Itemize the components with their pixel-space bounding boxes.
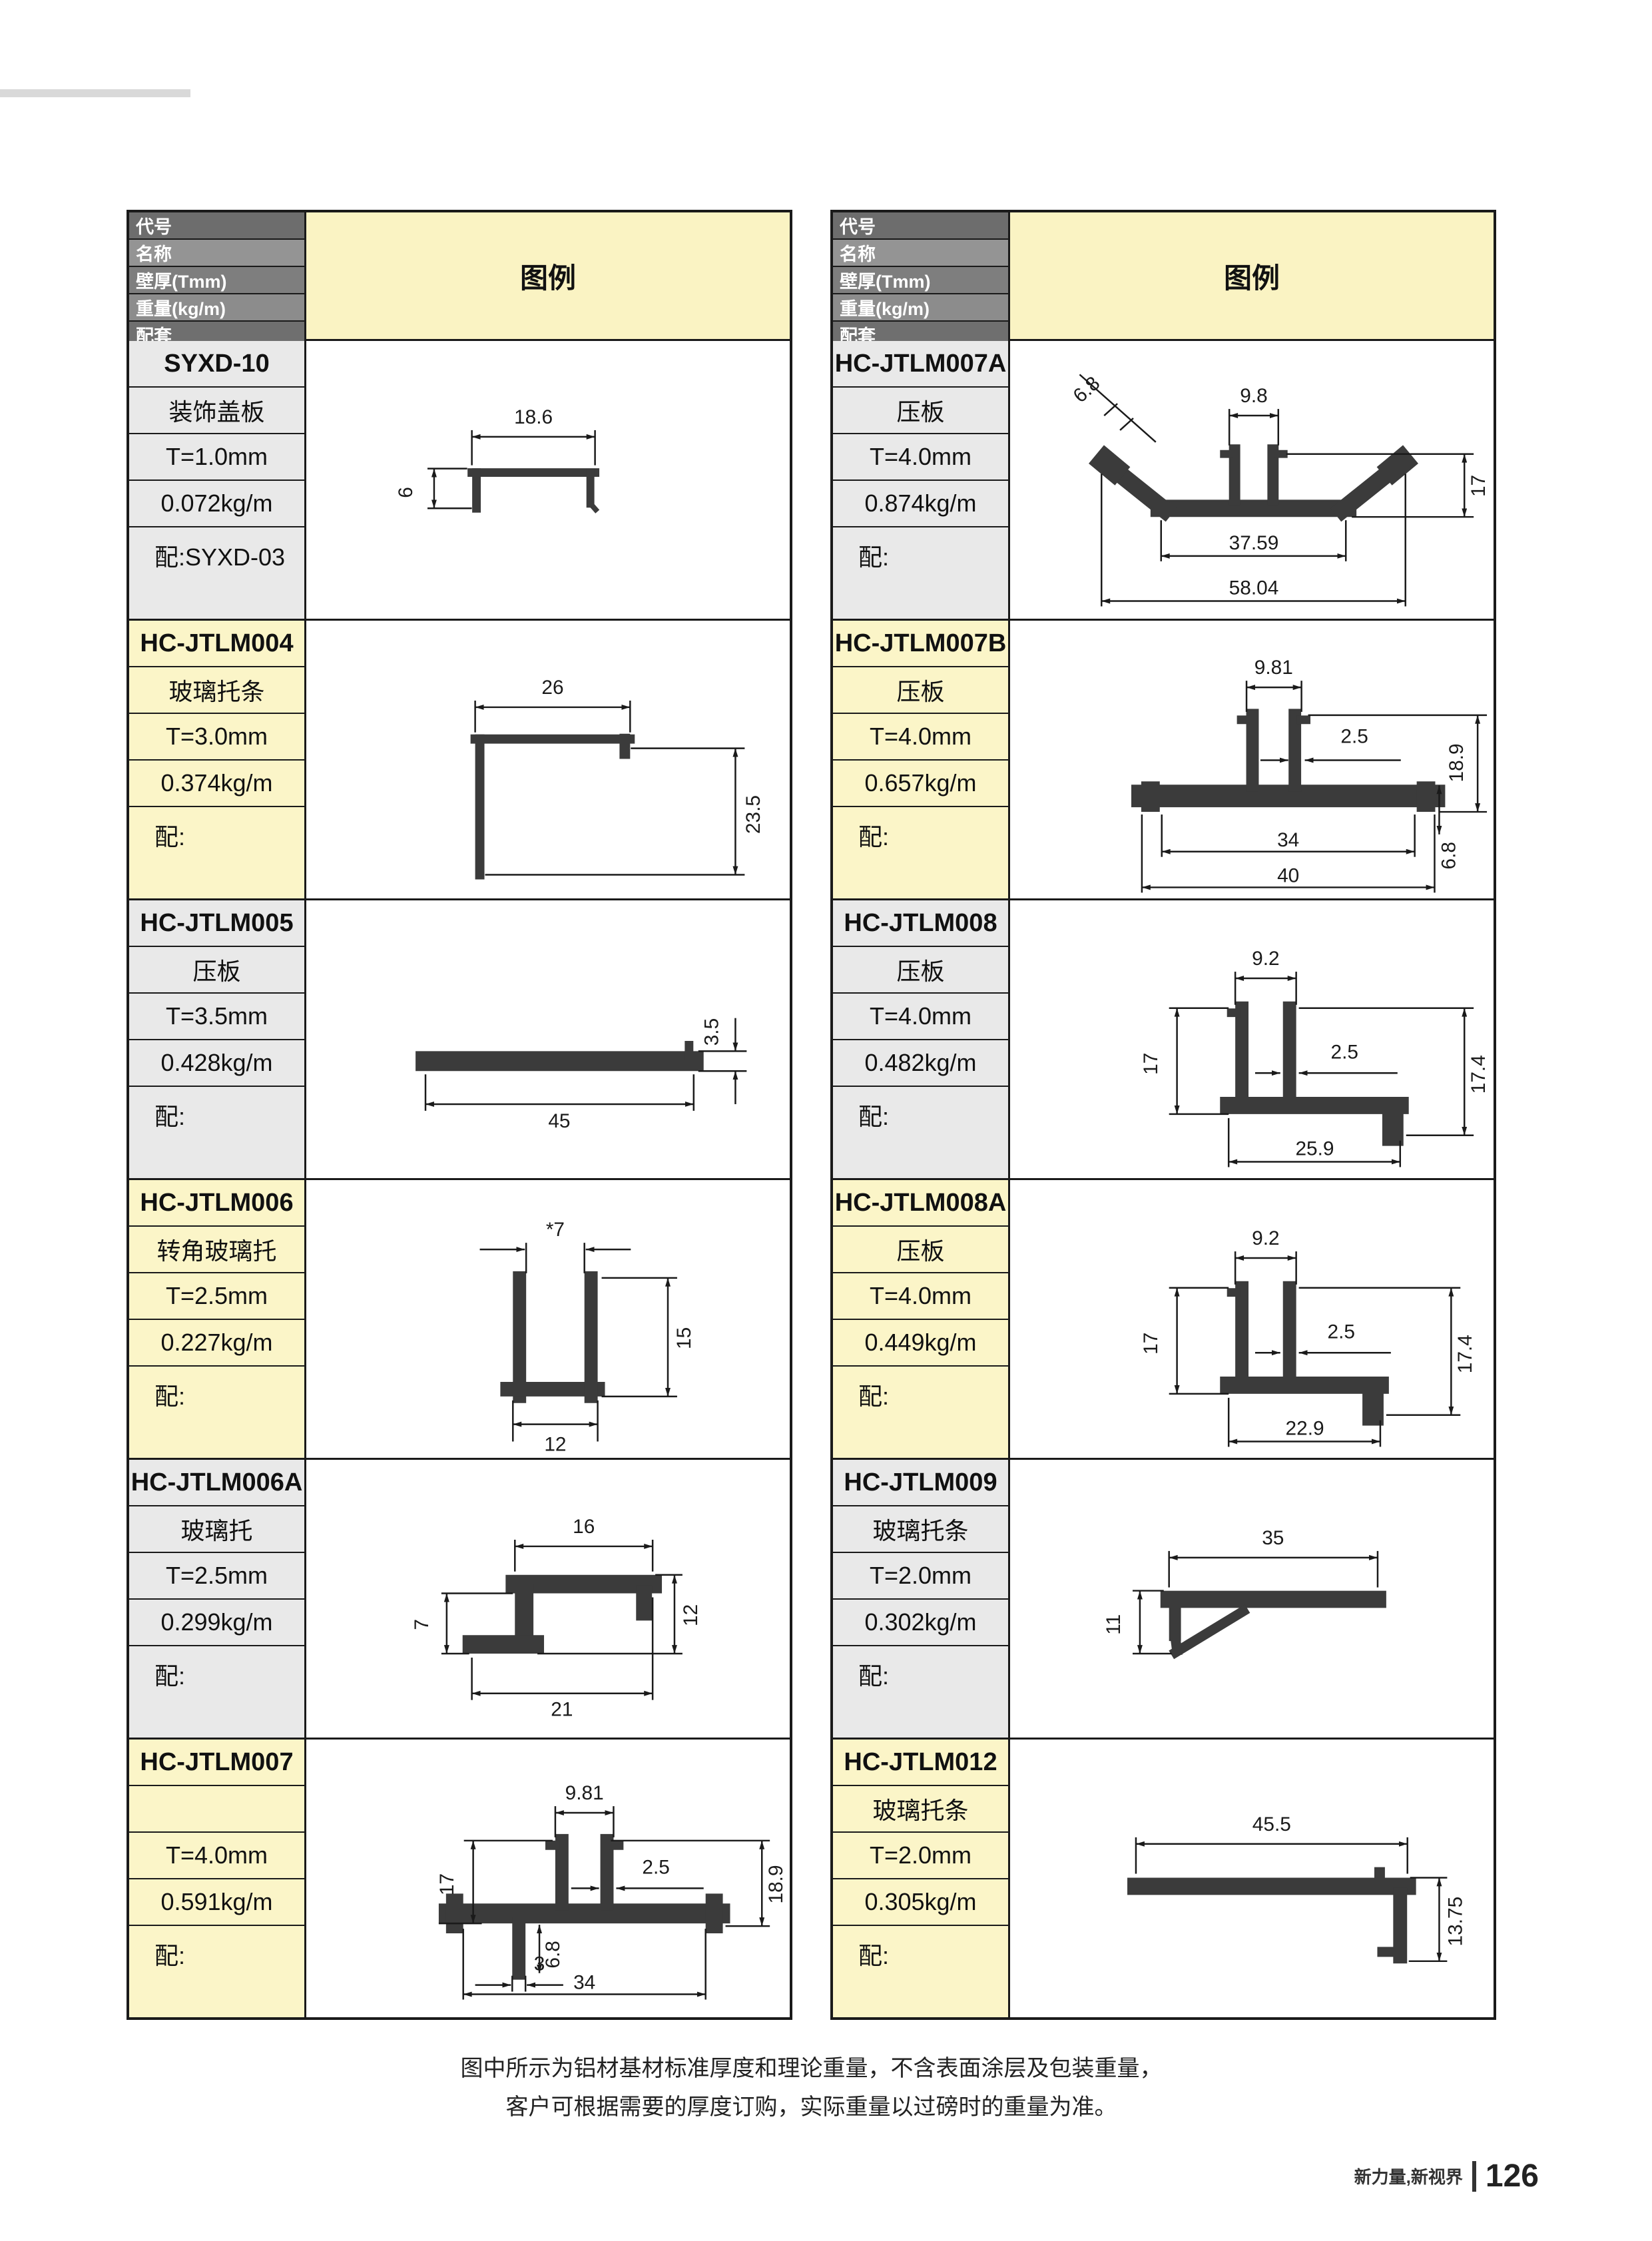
dim-label-top: 9.2 — [1252, 1227, 1279, 1249]
product-code: HC-JTLM008 — [833, 900, 1008, 947]
product-block-jtlm004: HC-JTLM004 玻璃托条 T=3.0mm 0.374kg/m 配: — [129, 619, 790, 898]
product-block-jtlm008a: HC-JTLM008A 压板 T=4.0mm 0.449kg/m 配: — [833, 1178, 1494, 1458]
profile-shape — [1136, 1873, 1408, 1957]
dimension-lines — [475, 701, 745, 875]
footer-divider — [1472, 2161, 1476, 2192]
product-labels: HC-JTLM004 玻璃托条 T=3.0mm 0.374kg/m 配: — [129, 621, 306, 898]
dim-label-width: 45 — [548, 1110, 570, 1132]
dim-label-top: 35 — [1262, 1527, 1284, 1549]
profile-drawing: 9.81 2.5 18.9 34 40 6.8 — [1010, 621, 1494, 898]
product-name: 玻璃托 — [129, 1506, 304, 1553]
product-weight: 0.428kg/m — [129, 1040, 304, 1087]
product-labels: HC-JTLM008A 压板 T=4.0mm 0.449kg/m 配: — [833, 1180, 1010, 1458]
profile-drawing: 26 23.5 — [306, 621, 790, 898]
dim-label-right: 18.9 — [765, 1865, 787, 1903]
footer-note: 图中所示为铝材基材标准厚度和理论重量，不含表面涂层及包装重量， 客户可根据需要的… — [127, 2050, 1496, 2127]
product-labels: HC-JTLM005 压板 T=3.5mm 0.428kg/m 配: — [129, 900, 306, 1178]
product-block-jtlm007: HC-JTLM007 T=4.0mm 0.591kg/m 配: — [129, 1738, 790, 2017]
profile-shape — [472, 473, 596, 510]
dim-label-gap: 2.5 — [1340, 726, 1368, 748]
dim-label-inner: 34 — [1277, 829, 1299, 851]
product-code: HC-JTLM004 — [129, 621, 304, 667]
dim-label-left: 11 — [1103, 1614, 1125, 1635]
page-number: 126 — [1486, 2158, 1539, 2194]
product-labels: SYXD-10 装饰盖板 T=1.0mm 0.072kg/m 配:SYXD-03 — [129, 341, 306, 619]
product-match: 配: — [129, 1646, 304, 1738]
dim-label-top: 9.81 — [565, 1782, 604, 1804]
product-block-jtlm006: HC-JTLM006 转角玻璃托 T=2.5mm 0.227kg/m 配: — [129, 1178, 790, 1458]
product-code: HC-JTLM008A — [833, 1180, 1008, 1227]
profile-table-left: 代号 名称 壁厚(Tmm) 重量(kg/m) 配套 图例 SYXD-10 装饰盖… — [127, 210, 792, 2020]
profile-drawing: 35 11 — [1010, 1460, 1494, 1738]
product-labels: HC-JTLM006A 玻璃托 T=2.5mm 0.299kg/m 配: — [129, 1460, 306, 1738]
product-thickness: T=4.0mm — [833, 434, 1008, 481]
profile-drawing-syxd10: 18.6 6 — [306, 341, 790, 619]
dim-label-right: 17 — [1468, 475, 1490, 497]
profile-shape — [475, 739, 631, 875]
product-thickness: T=4.0mm — [833, 994, 1008, 1040]
footer-note-line1: 图中所示为铝材基材标准厚度和理论重量，不含表面涂层及包装重量， — [127, 2050, 1496, 2088]
product-code: SYXD-10 — [129, 341, 304, 388]
product-name: 转角玻璃托 — [129, 1227, 304, 1273]
header-row-name: 名称 — [129, 240, 304, 267]
header-row-weight: 重量(kg/m) — [833, 294, 1008, 322]
product-thickness: T=2.0mm — [833, 1833, 1008, 1879]
profile-shape — [449, 1841, 720, 1973]
dim-label-top: 16 — [573, 1516, 595, 1538]
dim-label-gap: 2.5 — [642, 1857, 669, 1879]
dim-label-right: 15 — [673, 1327, 695, 1349]
dim-label-bottom: 25.9 — [1295, 1138, 1334, 1160]
dim-label-left: 17 — [1140, 1053, 1162, 1075]
legend-header: 图例 — [1010, 212, 1494, 339]
dim-label-width: 26 — [541, 677, 563, 699]
product-name: 压板 — [833, 947, 1008, 994]
product-thickness: T=2.0mm — [833, 1553, 1008, 1600]
product-code: HC-JTLM005 — [129, 900, 304, 947]
profile-drawing: 9.81 17 18.9 2.5 3 34 6.8 — [306, 1740, 790, 2017]
dim-label-top: 45.5 — [1252, 1813, 1291, 1835]
product-name: 玻璃托条 — [129, 667, 304, 714]
product-match: 配: — [833, 1367, 1008, 1458]
product-code: HC-JTLM007 — [129, 1740, 304, 1786]
product-name: 玻璃托条 — [833, 1786, 1008, 1833]
product-name: 压板 — [129, 947, 304, 994]
dim-label-right: 17.4 — [1468, 1055, 1490, 1094]
dim-label-thickness: 3.5 — [701, 1018, 723, 1046]
dim-label-outer: 58.04 — [1229, 577, 1279, 599]
product-match: 配: — [129, 1087, 304, 1178]
product-labels: HC-JTLM006 转角玻璃托 T=2.5mm 0.227kg/m 配: — [129, 1180, 306, 1458]
product-thickness: T=1.0mm — [129, 434, 304, 481]
legend-header: 图例 — [306, 212, 790, 339]
profile-drawing: 3.5 45 — [306, 900, 790, 1178]
product-code: HC-JTLM012 — [833, 1740, 1008, 1786]
dim-label-right: 17.4 — [1454, 1335, 1476, 1373]
product-match: 配: — [833, 527, 1008, 619]
profile-drawing-jtlm004: 26 23.5 — [306, 621, 790, 898]
profile-drawing-jtlm007b: 9.81 2.5 18.9 34 40 6.8 — [1010, 621, 1494, 898]
product-thickness: T=4.0mm — [833, 714, 1008, 761]
profile-drawing: 16 7 12 21 — [306, 1460, 790, 1738]
header-row-thickness: 壁厚(Tmm) — [129, 267, 304, 294]
product-labels: HC-JTLM008 压板 T=4.0mm 0.482kg/m 配: — [833, 900, 1010, 1178]
dim-label-top: 9.81 — [1254, 657, 1293, 679]
product-thickness: T=2.5mm — [129, 1553, 304, 1600]
profile-shape — [1141, 715, 1436, 812]
dim-label-bottom: 22.9 — [1286, 1418, 1324, 1440]
product-match: 配: — [833, 1926, 1008, 2017]
dim-label-top: 9.8 — [1240, 385, 1267, 407]
profile-drawing: 45.5 13.75 — [1010, 1740, 1494, 2017]
header-row-code: 代号 — [833, 212, 1008, 240]
dim-label-height: 6 — [395, 487, 417, 498]
page-top-decoration — [0, 89, 190, 97]
profile-drawing: 9.2 17 2.5 17.4 22.9 — [1010, 1180, 1494, 1458]
profile-drawing-jtlm005: 3.5 45 — [306, 900, 790, 1178]
product-labels: HC-JTLM007 T=4.0mm 0.591kg/m 配: — [129, 1740, 306, 2017]
product-match: 配: — [833, 1087, 1008, 1178]
product-code: HC-JTLM007B — [833, 621, 1008, 667]
catalog-area: 代号 名称 壁厚(Tmm) 重量(kg/m) 配套 图例 SYXD-10 装饰盖… — [127, 210, 1496, 2020]
profile-shape — [1229, 1288, 1380, 1415]
product-name: 装饰盖板 — [129, 388, 304, 434]
footer-note-line2: 客户可根据需要的厚度订购，实际重量以过磅时的重量为准。 — [127, 2088, 1496, 2127]
product-weight: 0.299kg/m — [129, 1600, 304, 1646]
product-code: HC-JTLM007A — [833, 341, 1008, 388]
product-code: HC-JTLM006A — [129, 1460, 304, 1506]
dim-label-gap: 2.5 — [1328, 1321, 1355, 1343]
profile-drawing: 18.6 6 — [306, 341, 790, 619]
product-name: 压板 — [833, 388, 1008, 434]
product-labels: HC-JTLM012 玻璃托条 T=2.0mm 0.305kg/m 配: — [833, 1740, 1010, 2017]
profile-drawing: 9.2 17 2.5 17.4 25.9 — [1010, 900, 1494, 1178]
product-match: 配:SYXD-03 — [129, 527, 304, 619]
product-block-jtlm007b: HC-JTLM007B 压板 T=4.0mm 0.657kg/m 配: — [833, 619, 1494, 898]
profile-drawing-jtlm012: 45.5 13.75 — [1010, 1740, 1494, 2017]
product-labels: HC-JTLM007A 压板 T=4.0mm 0.874kg/m 配: — [833, 341, 1010, 619]
dim-label-outer: 40 — [1277, 864, 1299, 886]
profile-drawing-jtlm006: *7 15 12 — [306, 1180, 790, 1458]
dim-label-top: *7 — [546, 1219, 565, 1241]
header-labels: 代号 名称 壁厚(Tmm) 重量(kg/m) 配套 — [129, 212, 306, 339]
dim-label-base: 6.8 — [1438, 842, 1460, 869]
header-labels: 代号 名称 壁厚(Tmm) 重量(kg/m) 配套 — [833, 212, 1010, 339]
dim-label-bottom: 21 — [551, 1699, 573, 1721]
product-match: 配: — [129, 1367, 304, 1458]
header-row-weight: 重量(kg/m) — [129, 294, 304, 322]
profile-table-right: 代号 名称 壁厚(Tmm) 重量(kg/m) 配套 图例 HC-JTLM007A… — [830, 210, 1496, 2020]
product-weight: 0.374kg/m — [129, 761, 304, 807]
product-weight: 0.227kg/m — [129, 1320, 304, 1367]
product-weight: 0.449kg/m — [833, 1320, 1008, 1367]
product-weight: 0.874kg/m — [833, 481, 1008, 527]
footer-brand: 新力量,新视界 — [1354, 2164, 1463, 2188]
profile-drawing-jtlm008: 9.2 17 2.5 17.4 25.9 — [1010, 900, 1494, 1178]
dim-label-left: 7 — [411, 1619, 433, 1630]
product-block-jtlm006a: HC-JTLM006A 玻璃托 T=2.5mm 0.299kg/m 配: — [129, 1458, 790, 1738]
product-weight: 0.482kg/m — [833, 1040, 1008, 1087]
page-footer: 新力量,新视界 126 — [1354, 2158, 1539, 2194]
product-thickness: T=4.0mm — [129, 1833, 304, 1879]
product-block-jtlm007a: HC-JTLM007A 压板 T=4.0mm 0.874kg/m 配: — [833, 339, 1494, 619]
dim-label-wing: 6.8 — [1069, 372, 1105, 407]
product-weight: 0.591kg/m — [129, 1879, 304, 1926]
profile-drawing-jtlm006a: 16 7 12 21 — [306, 1460, 790, 1738]
product-thickness: T=3.5mm — [129, 994, 304, 1040]
product-match: 配: — [129, 1926, 304, 2017]
profile-drawing-jtlm007a: 6.8 9.8 17 37.59 58.04 — [1010, 341, 1494, 619]
dim-label-leg-length: 6.8 — [542, 1941, 564, 1968]
product-match: 配: — [833, 1646, 1008, 1738]
table-header: 代号 名称 壁厚(Tmm) 重量(kg/m) 配套 图例 — [129, 212, 790, 339]
dim-label-left: 17 — [1140, 1333, 1162, 1355]
product-block-jtlm008: HC-JTLM008 压板 T=4.0mm 0.482kg/m 配: — [833, 898, 1494, 1178]
product-code: HC-JTLM006 — [129, 1180, 304, 1227]
product-weight: 0.302kg/m — [833, 1600, 1008, 1646]
dim-label-inner: 37.59 — [1229, 532, 1279, 554]
header-row-code: 代号 — [129, 212, 304, 240]
profile-drawing: 6.8 9.8 17 37.59 58.04 — [1010, 341, 1494, 619]
product-match: 配: — [833, 807, 1008, 898]
product-weight: 0.657kg/m — [833, 761, 1008, 807]
product-name: 玻璃托条 — [833, 1506, 1008, 1553]
profile-shape — [1105, 450, 1402, 510]
profile-shape — [425, 1045, 694, 1061]
product-labels: HC-JTLM009 玻璃托条 T=2.0mm 0.302kg/m 配: — [833, 1460, 1010, 1738]
product-code: HC-JTLM009 — [833, 1460, 1008, 1506]
product-match: 配: — [129, 807, 304, 898]
dim-label-right: 18.9 — [1446, 743, 1468, 782]
product-weight: 0.305kg/m — [833, 1879, 1008, 1926]
profile-drawing: *7 15 12 — [306, 1180, 790, 1458]
profile-drawing-jtlm007: 9.81 17 18.9 2.5 3 34 6.8 — [306, 1740, 790, 2017]
profile-drawing-jtlm008a: 9.2 17 2.5 17.4 22.9 — [1010, 1180, 1494, 1458]
product-thickness: T=2.5mm — [129, 1273, 304, 1320]
profile-shape — [1169, 1599, 1378, 1652]
product-block-jtlm005: HC-JTLM005 压板 T=3.5mm 0.428kg/m 配: — [129, 898, 790, 1178]
profile-drawing-jtlm009: 35 11 — [1010, 1460, 1494, 1738]
dimension-lines — [480, 1243, 677, 1441]
header-row-name: 名称 — [833, 240, 1008, 267]
product-name: 压板 — [833, 667, 1008, 714]
product-weight: 0.072kg/m — [129, 481, 304, 527]
product-name: 压板 — [833, 1227, 1008, 1273]
dim-label-left: 17 — [436, 1873, 458, 1895]
profile-shape — [1229, 1008, 1400, 1135]
dim-label-right: 13.75 — [1444, 1897, 1466, 1947]
dim-label-bottom: 34 — [573, 1972, 595, 1994]
product-block-jtlm012: HC-JTLM012 玻璃托条 T=2.0mm 0.305kg/m 配: — [833, 1738, 1494, 2017]
dim-label-gap: 2.5 — [1330, 1041, 1358, 1063]
dim-label-bottom: 12 — [544, 1433, 566, 1455]
table-header: 代号 名称 壁厚(Tmm) 重量(kg/m) 配套 图例 — [833, 212, 1494, 339]
dim-label-top: 9.2 — [1252, 948, 1279, 970]
dim-label-right: 12 — [680, 1604, 702, 1626]
header-row-thickness: 壁厚(Tmm) — [833, 267, 1008, 294]
product-block-jtlm009: HC-JTLM009 玻璃托条 T=2.0mm 0.302kg/m 配: — [833, 1458, 1494, 1738]
product-thickness: T=3.0mm — [129, 714, 304, 761]
profile-shape — [507, 1278, 597, 1397]
product-name — [129, 1786, 304, 1833]
dim-label-height: 23.5 — [742, 795, 764, 834]
product-thickness: T=4.0mm — [833, 1273, 1008, 1320]
product-block-syxd10: SYXD-10 装饰盖板 T=1.0mm 0.072kg/m 配:SYXD-03 — [129, 339, 790, 619]
product-labels: HC-JTLM007B 压板 T=4.0mm 0.657kg/m 配: — [833, 621, 1010, 898]
dim-label-width: 18.6 — [514, 406, 553, 428]
